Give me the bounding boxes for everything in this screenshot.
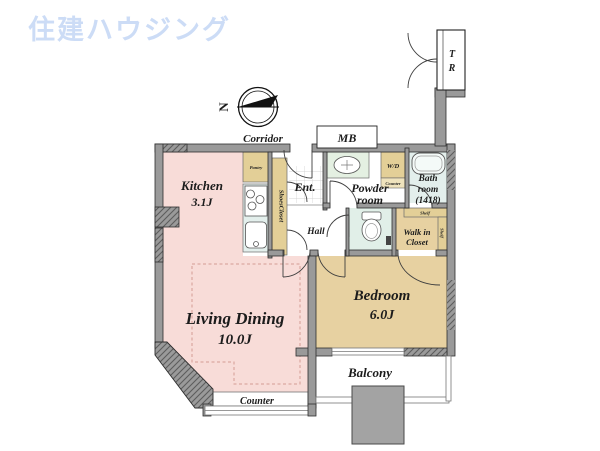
mb-label: MB [337,131,357,145]
faucet-icon [254,242,259,247]
compass-icon: N [216,88,279,127]
shoes-closet-label: ShoesCloset [278,190,285,223]
wic-label-1: Walk in [403,227,430,237]
wall-left-hatch [155,228,163,262]
wall-hall-b [310,250,318,256]
powder-room-label-2: room [357,193,383,207]
window-post-right [308,404,316,416]
floor-plan-drawing: T R MB N Corridor Kitchen 3.1J Pantry Sh… [0,0,600,451]
tr-door-arc-bottom [408,59,437,88]
bedroom-size: 6.0J [370,308,396,323]
bath-label-1: Bath [417,174,437,184]
pantry-label: Pantry [250,165,264,170]
wall-right-hatch1 [447,150,455,190]
wic-label-2: Closet [406,237,428,247]
wall-left-bump [155,207,179,227]
bath-fixtures [412,153,445,174]
wall-hall-d [436,250,447,256]
paper-holder-icon [386,236,391,245]
wall-ld-bedroom [308,256,316,408]
wall-hall-c [345,250,398,256]
bath-label-2: room [418,185,439,195]
meter-box: MB [317,126,377,148]
corridor-label: Corridor [243,133,283,145]
shoes-closet-door-arc-bottom [287,230,307,250]
trunk-room: T R [408,30,465,146]
kitchen-label: Kitchen [180,178,223,193]
shelf-top-label: Shelf [420,211,430,216]
compass-north-label: N [216,102,231,112]
living-dining-size: 10.0J [218,332,252,348]
living-dining-label: Living Dining [185,309,285,328]
entrance-label: Ent. [293,180,315,194]
bedroom-label: Bedroom [353,288,411,304]
tr-box [437,30,465,90]
wall-toilet-wic [392,208,396,256]
wall-powder-bottom-a [323,203,330,208]
balcony-rail-right [446,356,451,401]
floor-plan-page: 住建ハウジング [0,0,600,451]
bath-label-3: (1418) [415,195,440,206]
wall-shoes-closet-left [268,152,272,258]
wall-ent-powder [323,152,327,210]
wd-label: W/D [387,163,400,170]
wall-bath-left [405,148,409,208]
balcony-label: Balcony [347,365,392,380]
balcony-hatch-box [352,386,404,444]
tr-label-t: T [449,49,456,60]
wall-hall-a [268,250,284,256]
hall-label: Hall [306,227,325,237]
toilet-bowl-icon [362,219,381,241]
wall-right-hatch2 [447,280,455,330]
shelf-right-label: Shelf [440,228,445,238]
kitchen-size: 3.1J [191,195,214,209]
tr-wall-v [435,88,446,146]
counter-label: Counter [240,396,274,407]
tr-door-arc-top [408,33,437,62]
tr-label-r: R [448,63,456,74]
wall-bedroom-bottom-right [404,348,447,356]
